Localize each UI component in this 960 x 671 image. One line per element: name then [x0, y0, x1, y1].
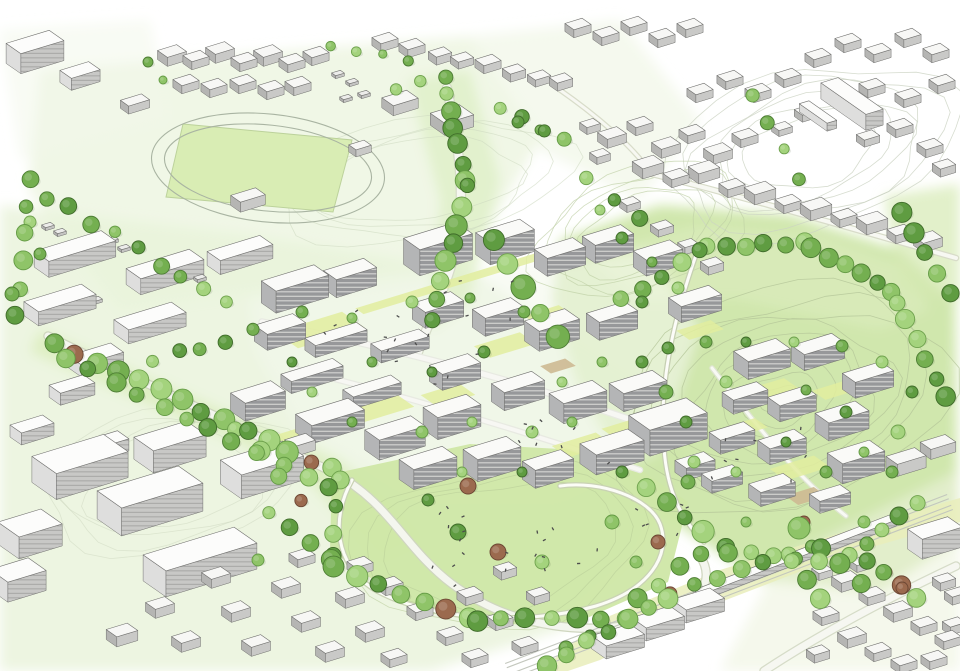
building-house: [775, 68, 801, 88]
tree-highlight: [457, 159, 464, 166]
tree-highlight: [919, 247, 926, 254]
tree-highlight: [860, 448, 865, 453]
tree-highlight: [182, 414, 188, 420]
tree-highlight: [470, 614, 479, 623]
tree-highlight: [298, 308, 303, 313]
tree-highlight: [860, 518, 865, 523]
tree-highlight: [721, 546, 729, 554]
tree-highlight: [906, 225, 915, 234]
tree-highlight: [392, 85, 397, 90]
building-house: [835, 33, 861, 53]
tree-highlight: [110, 364, 120, 374]
tree-highlight: [898, 584, 903, 589]
tree-highlight: [492, 546, 499, 553]
tree: [608, 194, 622, 206]
tree-highlight: [598, 358, 603, 363]
tree-highlight: [822, 468, 827, 473]
tree-highlight: [134, 243, 140, 249]
tree-highlight: [944, 287, 952, 295]
tree-highlight: [581, 635, 588, 642]
tree-highlight: [746, 547, 753, 554]
tree-highlight: [892, 509, 900, 517]
tree-highlight: [110, 375, 119, 384]
tree-highlight: [308, 388, 313, 393]
tree-highlight: [679, 512, 686, 519]
tree-highlight: [21, 202, 27, 208]
tree-highlight: [540, 658, 549, 667]
tree-highlight: [931, 267, 939, 275]
tree-highlight: [643, 602, 650, 609]
building-house: [917, 138, 943, 158]
tree-highlight: [442, 89, 448, 95]
building-house: [923, 43, 949, 63]
tree-highlight: [176, 272, 182, 278]
tree-highlight: [888, 468, 893, 473]
tree: [19, 200, 34, 214]
tree-highlight: [872, 277, 879, 284]
tree-highlight: [570, 610, 579, 619]
tree-highlight: [131, 389, 138, 396]
tree-highlight: [486, 232, 495, 241]
tree-highlight: [607, 517, 613, 523]
tree-highlight: [682, 418, 687, 423]
tree-highlight: [306, 457, 313, 464]
tree-highlight: [842, 408, 847, 413]
tree-highlight: [877, 525, 883, 531]
tree-highlight: [450, 136, 459, 145]
tree-highlight: [175, 346, 181, 352]
tree-highlight: [462, 480, 469, 487]
tree-highlight: [653, 581, 659, 587]
tree-highlight: [327, 528, 335, 536]
tree-highlight: [702, 338, 707, 343]
tree-highlight: [722, 378, 727, 383]
tree-highlight: [446, 121, 455, 130]
tree-highlight: [720, 240, 728, 248]
tree-highlight: [782, 438, 787, 443]
building-house: [865, 43, 891, 63]
tree-highlight: [418, 428, 423, 433]
tree-highlight: [534, 307, 542, 315]
tree-highlight: [278, 459, 285, 466]
tree-highlight: [748, 91, 754, 97]
tree-highlight: [540, 126, 546, 132]
tree-highlight: [380, 51, 384, 55]
tree-highlight: [813, 592, 822, 601]
tree-highlight: [441, 72, 447, 78]
tree-highlight: [664, 344, 669, 349]
tree-highlight: [757, 237, 765, 245]
tree-highlight: [438, 602, 447, 611]
tree-highlight: [304, 537, 312, 545]
tree-highlight: [302, 471, 310, 479]
tree-highlight: [768, 550, 775, 557]
person-figure: [790, 480, 791, 483]
person-figure: [509, 318, 510, 321]
tree-highlight: [434, 275, 442, 283]
tree-highlight: [742, 338, 747, 343]
tree-highlight: [16, 254, 24, 262]
tree-highlight: [878, 358, 883, 363]
tree-highlight: [148, 357, 153, 362]
tree-highlight: [885, 286, 893, 294]
tree-highlight: [297, 496, 303, 502]
tree-highlight: [618, 468, 623, 473]
tree-highlight: [732, 468, 737, 473]
tree-highlight: [349, 568, 359, 578]
building-house: [649, 28, 675, 48]
tree-highlight: [547, 613, 554, 620]
tree-highlight: [878, 567, 885, 574]
tree-highlight: [931, 374, 938, 381]
tree-highlight: [132, 372, 141, 381]
tree-highlight: [8, 309, 16, 317]
tree-highlight: [736, 563, 744, 571]
building-house: [677, 18, 703, 38]
tree-highlight: [855, 266, 863, 274]
tree-highlight: [814, 541, 823, 550]
tree-highlight: [621, 612, 630, 621]
tree-highlight: [800, 573, 808, 581]
masterplan-aerial-rendering: [0, 0, 960, 671]
tree-highlight: [48, 336, 57, 345]
tree-highlight: [910, 591, 918, 599]
tree-highlight: [631, 591, 640, 600]
building-house: [895, 28, 921, 48]
tree-highlight: [689, 579, 695, 585]
tree-highlight: [220, 337, 227, 344]
tree-highlight: [695, 548, 702, 555]
tree-highlight: [262, 433, 272, 443]
tree: [671, 557, 691, 575]
tree-highlight: [42, 194, 48, 200]
tree-highlight: [673, 560, 681, 568]
tree-highlight: [660, 495, 668, 503]
building-house: [717, 70, 743, 90]
tree-highlight: [661, 387, 667, 393]
tree-highlight: [615, 293, 622, 300]
tree-highlight: [462, 180, 468, 186]
tree-highlight: [160, 77, 164, 81]
tree-highlight: [322, 481, 330, 489]
tree-highlight: [59, 352, 67, 360]
tree-highlight: [62, 200, 70, 208]
tree-highlight: [144, 58, 149, 63]
building-house: [929, 74, 955, 94]
tree-highlight: [568, 418, 573, 423]
tree-highlight: [690, 458, 695, 463]
tree-highlight: [452, 526, 459, 533]
tree-highlight: [251, 447, 258, 454]
tree-highlight: [254, 556, 259, 561]
tree-highlight: [327, 43, 331, 47]
tree-highlight: [428, 368, 433, 373]
tree-highlight: [222, 298, 227, 303]
building-house: [805, 48, 831, 68]
tree-highlight: [368, 358, 373, 363]
building-house: [687, 83, 713, 103]
tree-highlight: [418, 596, 426, 604]
tree-highlight: [405, 57, 410, 62]
tree-highlight: [326, 559, 335, 568]
tree-highlight: [694, 245, 701, 252]
tree-highlight: [912, 498, 919, 505]
tree-highlight: [444, 104, 453, 113]
tree-highlight: [198, 284, 204, 290]
tree-highlight: [331, 501, 337, 507]
tree-highlight: [634, 212, 641, 219]
tree-highlight: [653, 537, 659, 543]
tree-highlight: [496, 104, 501, 109]
tree-highlight: [7, 289, 13, 295]
tree-highlight: [447, 236, 455, 244]
tree-highlight: [201, 421, 209, 429]
tree-highlight: [762, 118, 768, 124]
tree-highlight: [661, 591, 670, 600]
tree-highlight: [855, 577, 863, 585]
tree-highlight: [431, 294, 438, 301]
tree-highlight: [537, 557, 543, 563]
tree-highlight: [898, 312, 907, 321]
tree-highlight: [813, 555, 821, 563]
tree-highlight: [838, 342, 843, 347]
tree-highlight: [279, 444, 289, 454]
tree-highlight: [648, 258, 653, 263]
tree: [760, 116, 776, 130]
masterplan-canvas: [0, 0, 960, 671]
tree-highlight: [822, 251, 831, 260]
tree-highlight: [26, 218, 31, 223]
tree-highlight: [712, 573, 719, 580]
tree-highlight: [36, 250, 41, 255]
tree-highlight: [632, 558, 637, 563]
tree-highlight: [283, 521, 291, 529]
tree-highlight: [595, 613, 602, 620]
tree: [693, 546, 710, 561]
tree-highlight: [891, 297, 898, 304]
tree-highlight: [348, 314, 353, 319]
tree-highlight: [790, 338, 795, 343]
tree-highlight: [514, 278, 525, 289]
building-house: [620, 196, 641, 212]
tree-highlight: [640, 481, 648, 489]
tree-highlight: [466, 294, 471, 299]
tree-highlight: [674, 284, 679, 289]
tree-highlight: [517, 610, 526, 619]
tree-highlight: [82, 363, 89, 370]
tree-highlight: [175, 392, 184, 401]
tree-highlight: [603, 627, 610, 634]
tree-highlight: [695, 523, 705, 533]
tree-highlight: [618, 234, 623, 239]
tree-highlight: [559, 134, 565, 140]
tree-highlight: [249, 325, 254, 330]
tree-highlight: [919, 353, 927, 361]
tree-highlight: [408, 298, 413, 303]
tree-highlight: [939, 389, 948, 398]
tree-highlight: [242, 424, 250, 432]
building-house: [732, 128, 758, 148]
tree-highlight: [111, 228, 116, 233]
tree-highlight: [230, 424, 237, 431]
tree-highlight: [794, 175, 800, 181]
tree-highlight: [520, 308, 525, 313]
tree-highlight: [581, 173, 587, 179]
tree-highlight: [558, 378, 563, 383]
tree-highlight: [637, 283, 644, 290]
tree-highlight: [780, 239, 787, 246]
tree-highlight: [500, 256, 509, 265]
tree-highlight: [416, 77, 421, 82]
building-house: [932, 159, 955, 177]
tree-highlight: [288, 358, 293, 363]
tree-highlight: [372, 578, 379, 585]
tree-highlight: [480, 348, 485, 353]
tree-highlight: [468, 418, 473, 423]
tree-highlight: [804, 240, 813, 249]
tree-highlight: [862, 539, 868, 545]
tree-highlight: [861, 555, 868, 562]
building-house: [895, 88, 921, 108]
tree-highlight: [495, 613, 502, 620]
tree-highlight: [514, 118, 519, 123]
tree-highlight: [757, 557, 764, 564]
tree-highlight: [427, 315, 434, 322]
tree-highlight: [781, 145, 786, 150]
tree-highlight: [802, 386, 807, 391]
tree: [595, 205, 607, 215]
building-house: [856, 130, 879, 147]
tree-highlight: [675, 256, 683, 264]
tree-highlight: [85, 218, 92, 225]
tree: [326, 41, 338, 51]
tree-highlight: [156, 260, 163, 267]
tree-highlight: [610, 195, 616, 201]
tree-highlight: [656, 272, 662, 278]
tree-highlight: [908, 388, 913, 393]
tree-highlight: [455, 200, 464, 209]
tree-highlight: [195, 345, 201, 351]
tree-highlight: [911, 333, 919, 341]
tree-highlight: [458, 468, 463, 473]
tree-highlight: [325, 461, 333, 469]
tree-highlight: [518, 468, 523, 473]
tree-highlight: [742, 518, 747, 523]
tree-highlight: [894, 205, 903, 214]
tree-highlight: [273, 470, 280, 477]
tree-highlight: [424, 496, 429, 501]
tree-highlight: [740, 241, 748, 249]
person-figure: [577, 563, 580, 564]
tree-highlight: [893, 427, 899, 433]
tree-highlight: [225, 435, 233, 443]
tree-highlight: [19, 227, 26, 234]
tree-highlight: [791, 520, 801, 530]
tree-highlight: [154, 381, 163, 390]
tree-highlight: [353, 48, 357, 52]
person-figure: [448, 525, 450, 528]
tree-highlight: [264, 508, 270, 514]
tree-highlight: [394, 588, 402, 596]
tree-highlight: [549, 328, 560, 339]
tree-highlight: [24, 173, 32, 181]
tree: [779, 144, 791, 154]
tree-highlight: [683, 477, 689, 483]
tree-highlight: [159, 401, 167, 409]
tree: [793, 173, 808, 186]
tree-highlight: [348, 418, 353, 423]
tree-highlight: [438, 253, 447, 262]
tree-highlight: [833, 556, 842, 565]
tree-highlight: [217, 412, 226, 421]
tree-highlight: [561, 649, 568, 656]
tree-highlight: [448, 218, 458, 228]
tree-highlight: [638, 358, 643, 363]
tree-highlight: [839, 258, 847, 266]
tree-highlight: [596, 206, 601, 211]
tree-highlight: [638, 298, 643, 303]
tree-highlight: [194, 406, 202, 414]
tree-highlight: [786, 556, 793, 563]
tree-highlight: [334, 473, 342, 481]
